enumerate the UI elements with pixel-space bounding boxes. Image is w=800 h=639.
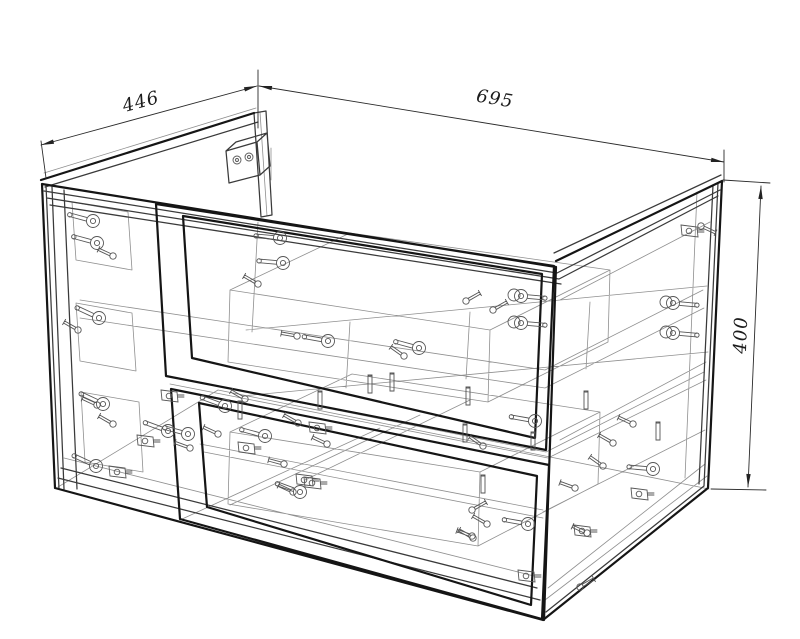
dimension-arrowhead xyxy=(244,86,257,92)
dimension-lines xyxy=(41,70,770,490)
dimension-arrowhead xyxy=(711,158,724,162)
technical-drawing-page: 446 695 400 xyxy=(0,0,800,639)
dimension-arrowhead xyxy=(41,140,54,146)
fastener-glyphs xyxy=(63,153,717,590)
dimension-label-height: 400 xyxy=(730,316,752,354)
dimension-arrowhead xyxy=(259,86,272,90)
